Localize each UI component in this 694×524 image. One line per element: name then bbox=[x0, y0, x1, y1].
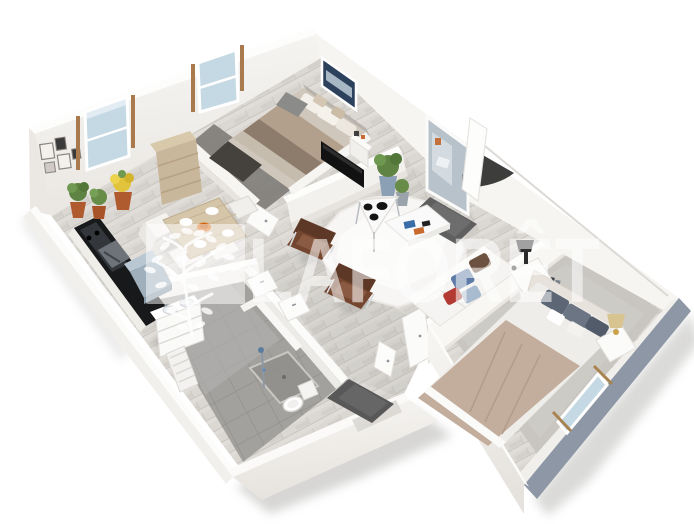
shower-head bbox=[258, 347, 264, 353]
mirror-reflection bbox=[435, 138, 441, 145]
black-bowl bbox=[377, 202, 388, 210]
floor-plan-svg: LAFORÊT bbox=[0, 0, 694, 524]
gold-lamp bbox=[607, 314, 625, 328]
curtain-rod bbox=[131, 95, 135, 148]
watermark-brand-text: LAFORÊT bbox=[248, 218, 600, 322]
curtain-rod bbox=[76, 116, 80, 170]
curtain-rod bbox=[191, 64, 195, 112]
drain bbox=[282, 375, 286, 379]
burner bbox=[87, 236, 92, 241]
black-bowl bbox=[364, 204, 373, 211]
curtain-rod bbox=[240, 45, 244, 91]
burner bbox=[95, 231, 100, 236]
door-handle bbox=[387, 360, 390, 363]
floor-plan-image: LAFORÊT bbox=[0, 0, 694, 524]
plate bbox=[206, 207, 219, 215]
